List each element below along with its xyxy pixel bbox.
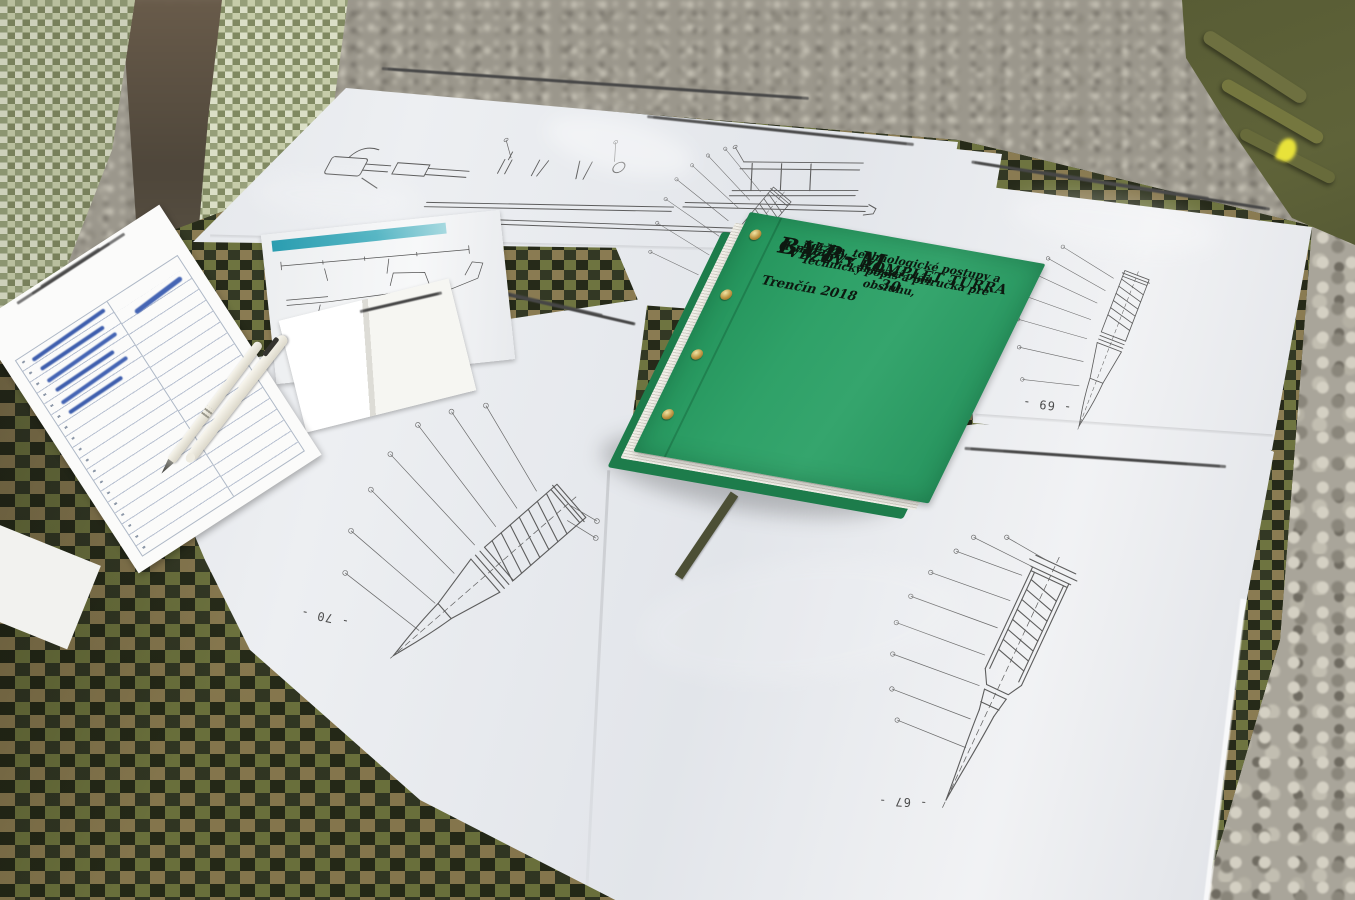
- binding-screw: [689, 348, 705, 360]
- binding-screw: [660, 408, 676, 420]
- binding-screw: [718, 289, 734, 301]
- page-number-67: - 67 -: [878, 794, 928, 811]
- binding-screw: [748, 229, 764, 241]
- note-list-text: [358, 297, 446, 317]
- photo-scene: - 69 - - 70 -: [0, 0, 1355, 900]
